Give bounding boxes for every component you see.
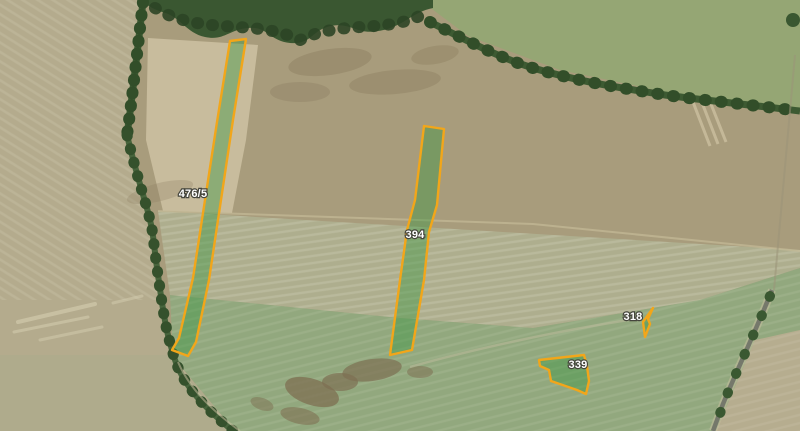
parcel-label-318: 318: [624, 311, 643, 323]
parcel-label-476-5: 476/5: [179, 188, 208, 200]
terrain-layer: [0, 0, 800, 431]
aerial-map-canvas[interactable]: 476/5 394 318 339: [0, 0, 800, 431]
parcel-label-394: 394: [406, 229, 426, 241]
parcel-label-339: 339: [569, 359, 588, 371]
map-viewport[interactable]: 476/5 394 318 339: [0, 0, 800, 431]
tree-northeast-corner: [786, 13, 800, 27]
